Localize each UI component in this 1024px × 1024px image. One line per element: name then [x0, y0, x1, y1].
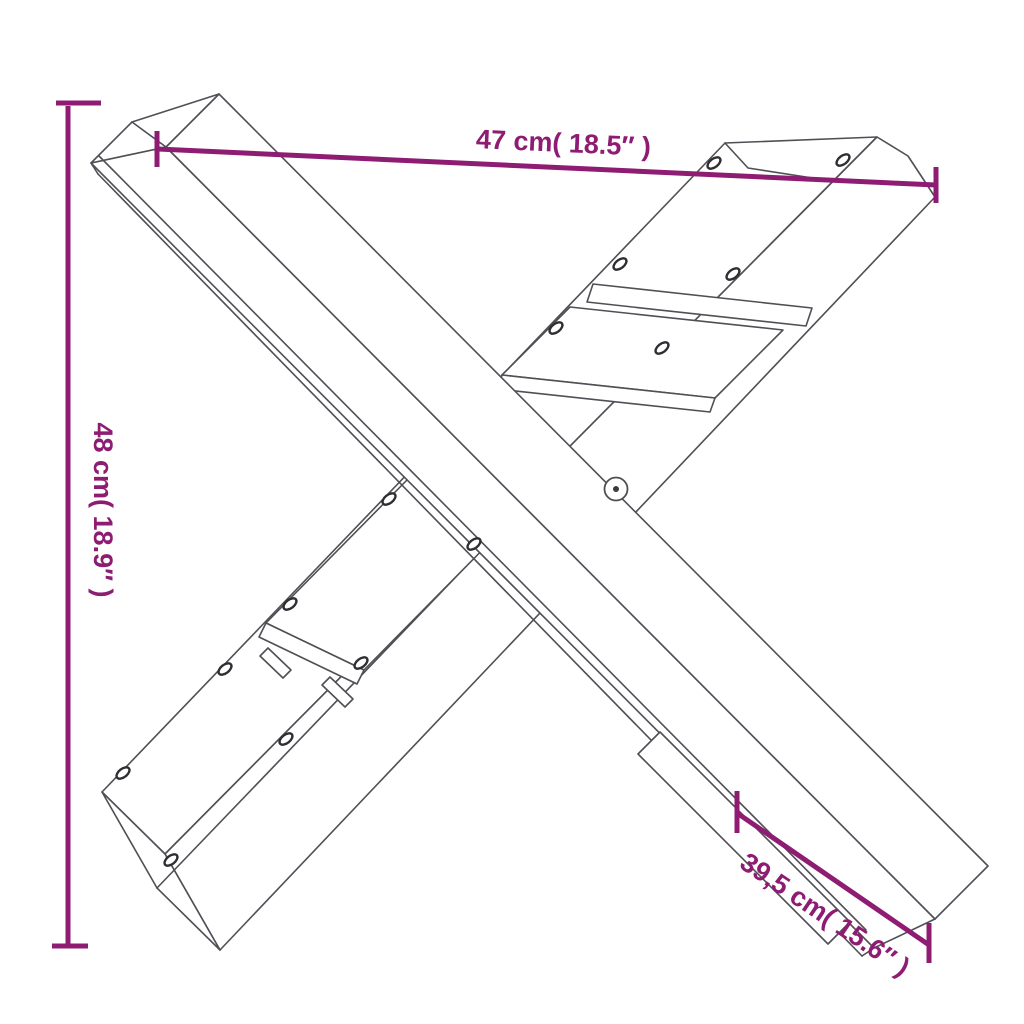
height-dimension-label: 48 cm( 18.9″ ) — [88, 422, 118, 597]
log-holder-drawing: 48 cm( 18.9″ ) 47 cm( 18.5″ ) 39,5 cm( 1… — [0, 0, 1024, 1024]
dimension-diagram: 48 cm( 18.9″ ) 47 cm( 18.5″ ) 39,5 cm( 1… — [0, 0, 1024, 1024]
upper-support-slat — [497, 284, 812, 412]
height-dimension: 48 cm( 18.9″ ) — [52, 103, 118, 946]
width-dimension-label: 47 cm( 18.5″ ) — [475, 124, 651, 162]
pivot-bolt — [605, 478, 628, 501]
pivot-bolt-center — [613, 486, 619, 492]
